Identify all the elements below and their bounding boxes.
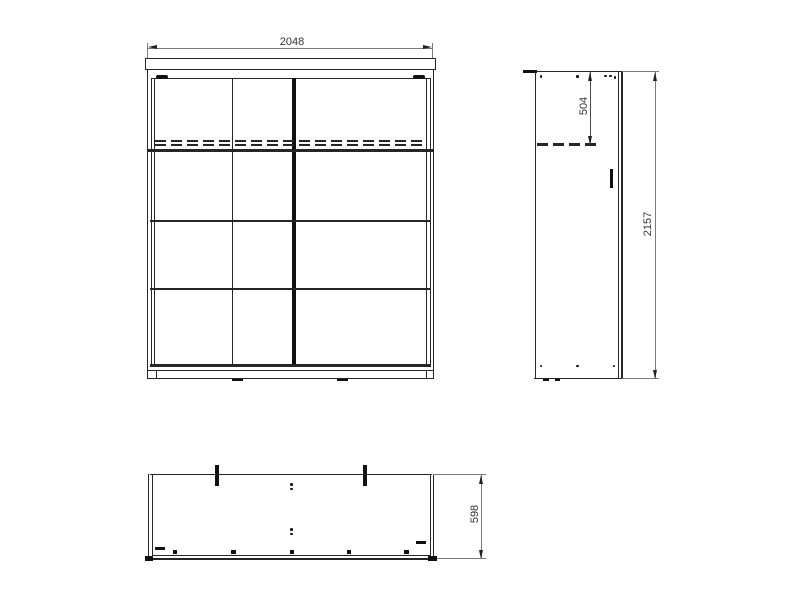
plan-right-edge-outer [433,474,434,559]
fitting-dash-right-icon [416,541,426,544]
connector-block-icon [290,550,295,554]
front-side-right [433,70,434,379]
height-dim-line [655,72,656,379]
roller-tick-right-icon [363,465,367,486]
side-foot-right [555,379,561,382]
front-width-label: 2048 [280,36,304,48]
front-foot-left [232,379,244,382]
front-top-panel [145,58,436,70]
fitting-hole-icon [609,75,612,78]
arrow-up-icon [479,475,483,484]
rail-height-label: 504 [578,96,590,114]
connector-block-icon [173,550,178,554]
hanging-rail-dashed-top [155,140,427,142]
fitting-hole-icon [613,365,616,368]
roller-bracket-right-icon [413,75,425,79]
plan-back-edge-inner [152,555,432,556]
plan-back-edge-outer [148,558,435,560]
front-interior-top-line [151,78,431,79]
front-width-ext-right [432,43,433,58]
side-front-edge-inner [618,71,619,379]
roller-tick-left-icon [215,465,219,486]
connector-block-icon [347,550,352,554]
plan-corner-foot-right [428,556,437,561]
fitting-hole-icon [540,365,543,368]
fitting-dash-left-icon [155,547,166,550]
shelf-line-2 [150,220,431,222]
front-plinth-left-line [156,370,157,378]
arrow-down-icon [479,550,483,559]
fitting-hole-icon [290,528,293,531]
shelf-line-1 [147,149,434,151]
total-height-label: 2157 [642,212,654,236]
front-plinth-bottom-line [147,378,434,379]
plan-corner-foot-left [145,556,153,561]
connector-block-icon [404,550,409,554]
shelf-line-3 [150,288,431,290]
side-back-edge [535,71,536,379]
hanging-rail-dashed-bottom [155,144,427,146]
arrow-right-icon [423,45,432,49]
fitting-hole-icon [614,76,617,79]
fitting-hole-icon [540,75,543,78]
fitting-hole-icon [604,75,607,78]
fitting-hole-icon [290,483,293,486]
plan-left-edge-inner [152,474,153,559]
door-handle [610,169,613,188]
plan-right-edge-inner [430,474,431,559]
side-front-edge-outer [621,71,623,379]
arrow-down-icon [588,136,592,145]
roller-bracket-left-icon [156,75,168,79]
fitting-hole-icon [576,365,579,368]
side-foot-left [543,379,549,382]
fitting-hole-icon [576,75,579,78]
plan-front-edge [150,474,432,476]
depth-dim-line [481,475,482,559]
arrow-up-icon [653,72,657,81]
front-plinth-right-line [426,370,427,378]
drawing-sheet: 2048 [0,0,800,600]
arrow-up-icon [588,72,592,81]
fitting-hole-icon [290,488,293,491]
plan-left-edge-outer [148,474,149,559]
connector-block-icon [231,550,236,554]
side-top-line [536,71,622,72]
door-bottom-rail-line [150,364,431,367]
front-carcass-bottom-line [147,370,434,371]
fitting-hole-icon [290,533,293,536]
front-side-left [147,70,148,379]
arrow-down-icon [653,370,657,379]
front-foot-right [337,379,349,382]
arrow-left-icon [148,45,157,49]
depth-label: 598 [469,505,481,523]
